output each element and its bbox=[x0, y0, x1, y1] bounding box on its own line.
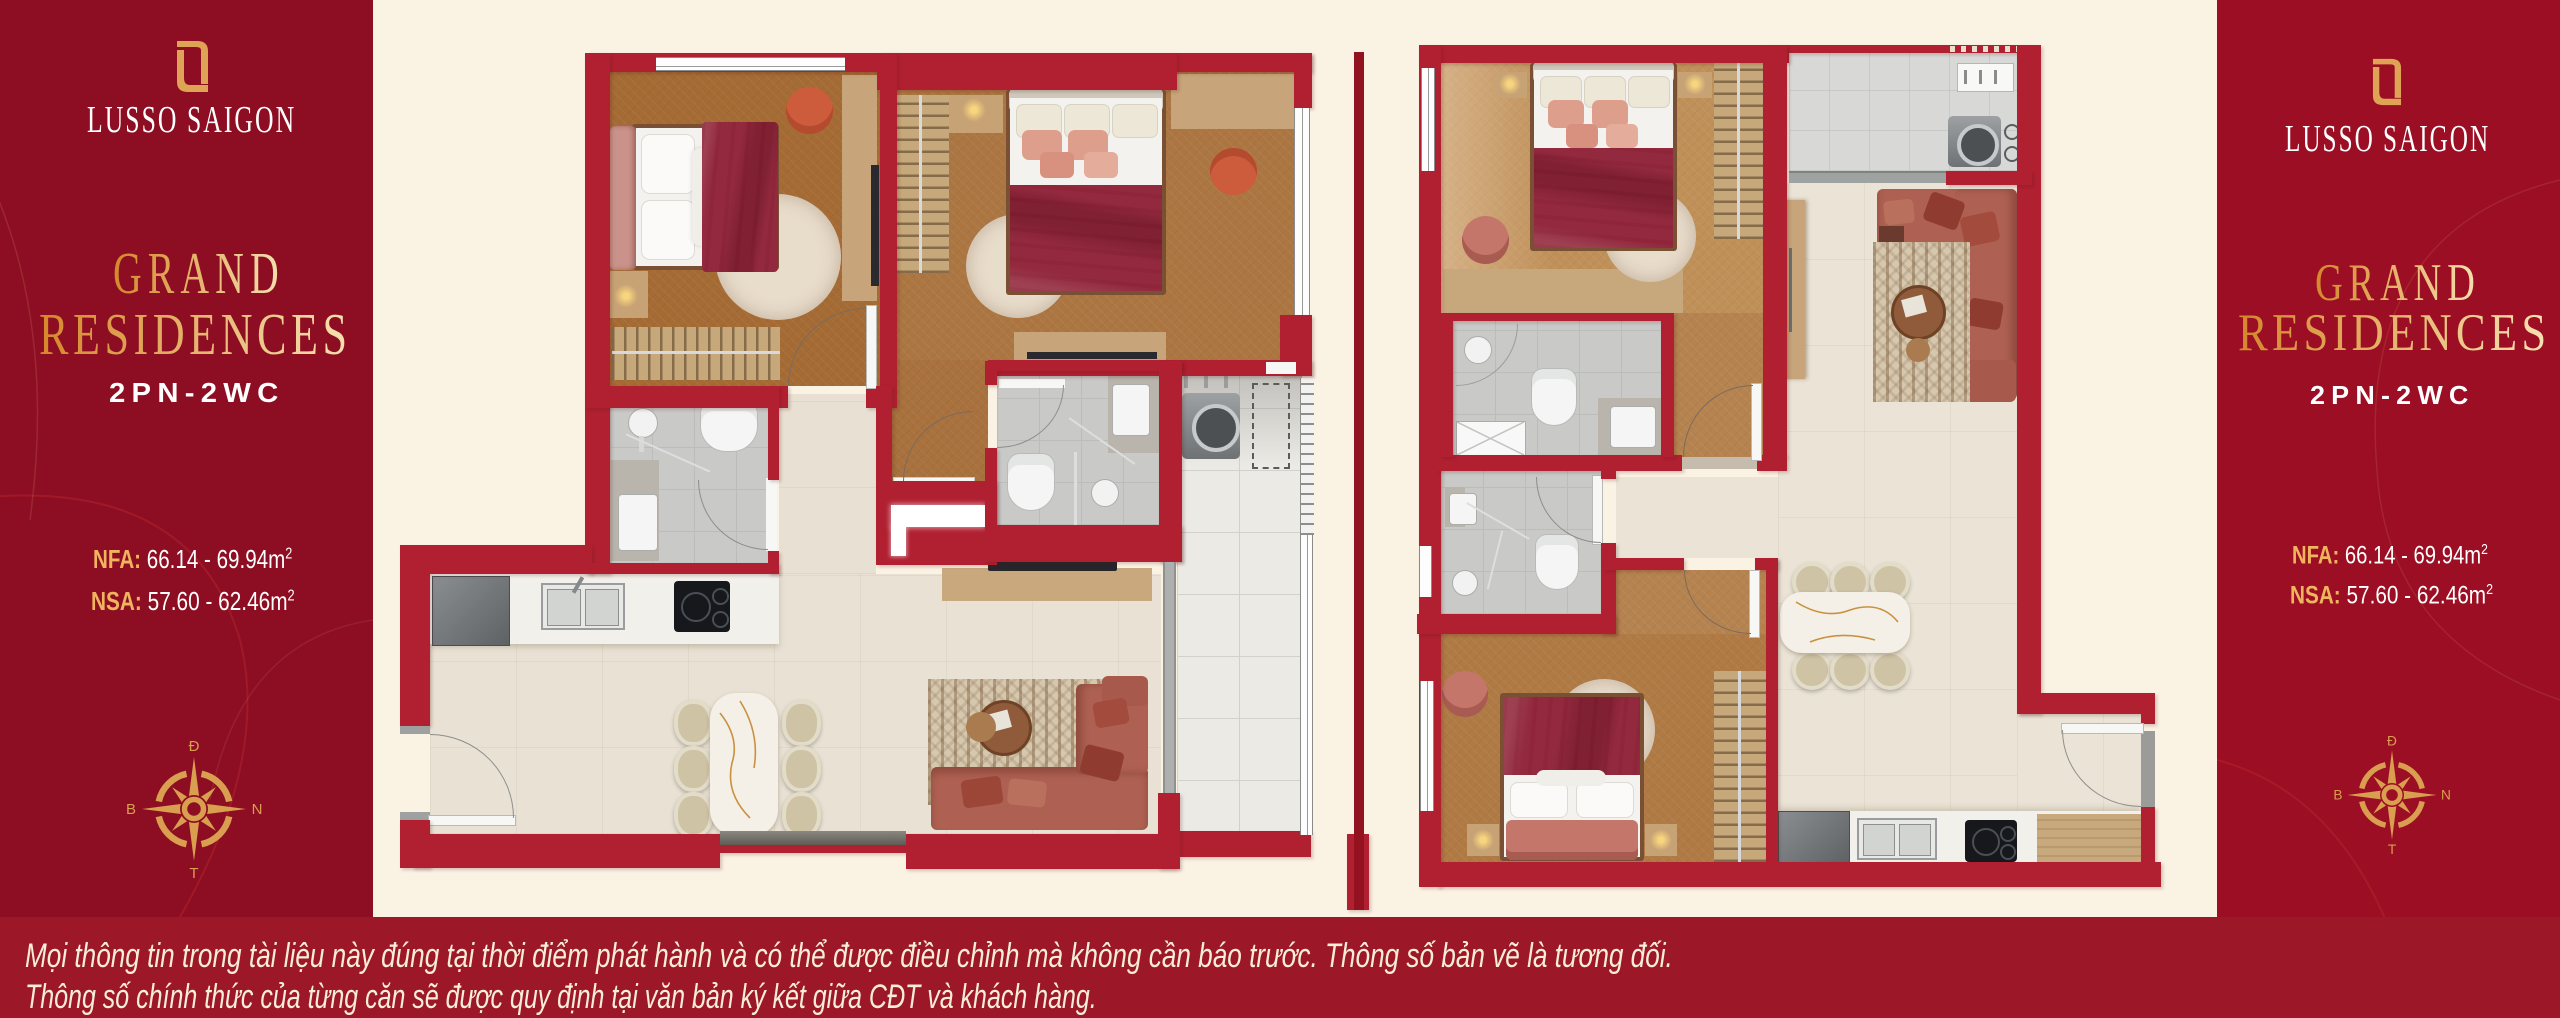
svg-text:Đ: Đ bbox=[2387, 735, 2397, 748]
svg-text:N: N bbox=[2441, 787, 2451, 802]
svg-text:B: B bbox=[126, 801, 136, 818]
svg-text:N: N bbox=[252, 801, 263, 818]
svg-text:Đ: Đ bbox=[189, 739, 200, 755]
svg-text:T: T bbox=[2388, 842, 2397, 855]
svg-text:T: T bbox=[189, 865, 198, 879]
svg-text:B: B bbox=[2333, 787, 2342, 802]
